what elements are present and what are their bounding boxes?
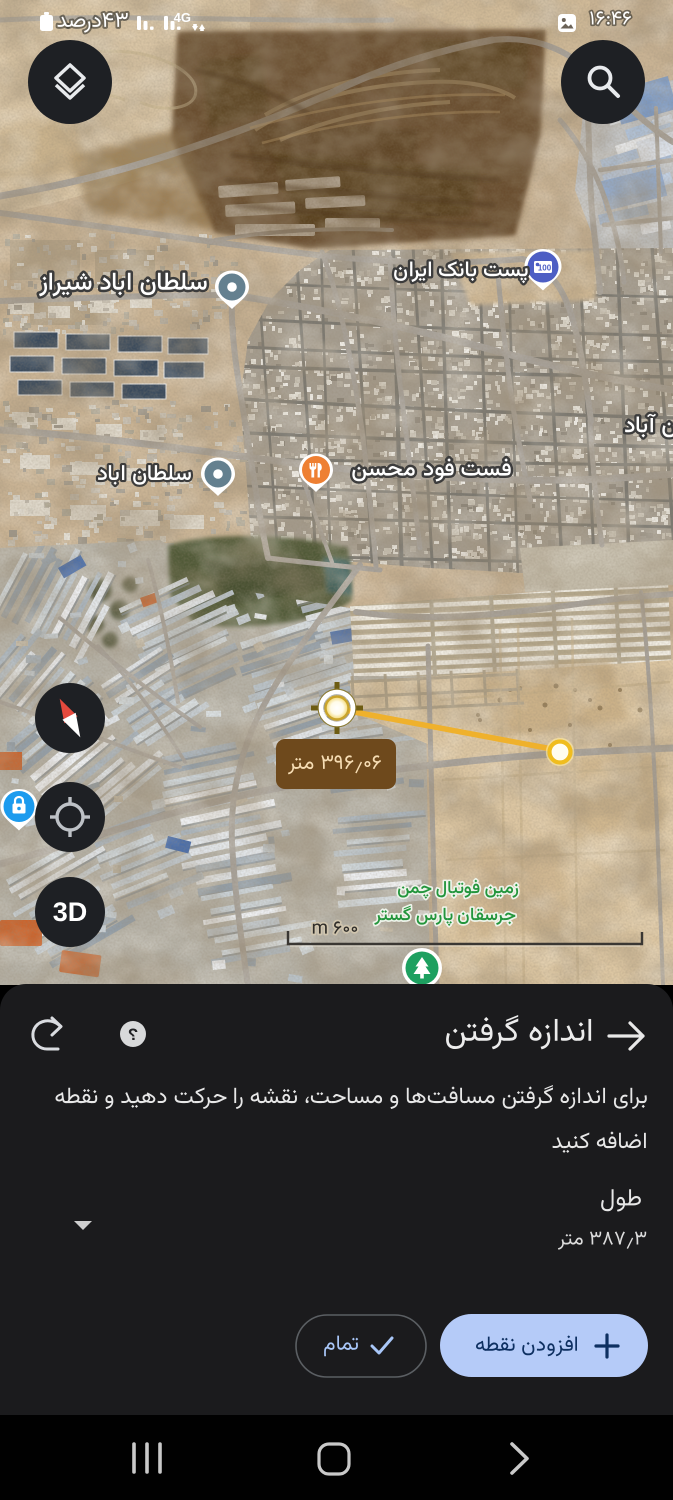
svg-text:3D: 3D bbox=[53, 897, 88, 927]
svg-text:100: 100 bbox=[538, 264, 552, 273]
svg-text:4G: 4G bbox=[174, 10, 191, 25]
